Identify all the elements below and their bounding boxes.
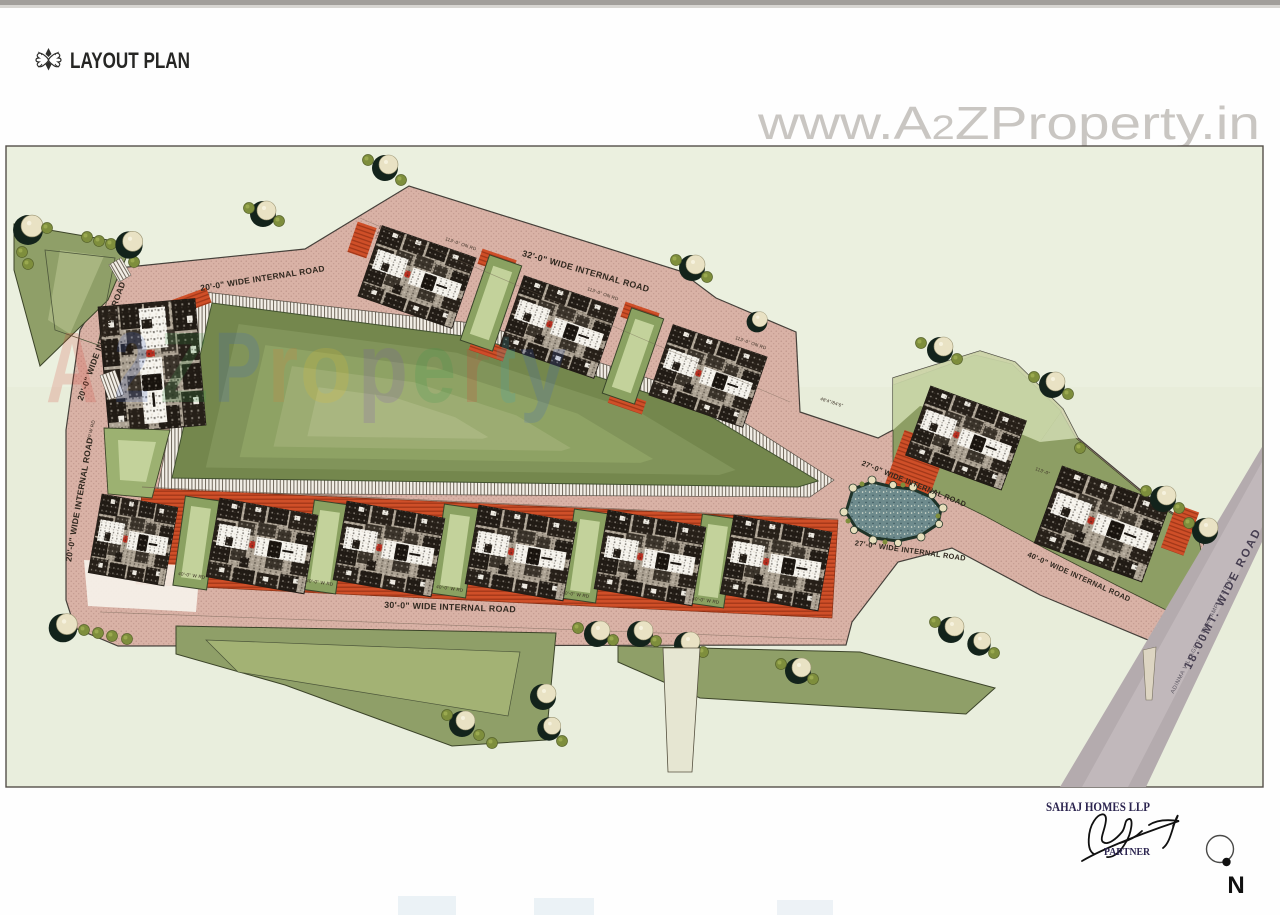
svg-text:o: o <box>300 312 352 424</box>
svg-text:y: y <box>520 312 566 424</box>
svg-text:N: N <box>1227 872 1244 899</box>
svg-text:Z: Z <box>160 312 208 424</box>
svg-text:PARTNER: PARTNER <box>1104 846 1151 858</box>
svg-text:www.A2ZProperty.in: www.A2ZProperty.in <box>757 97 1260 149</box>
svg-text:t: t <box>496 312 516 424</box>
svg-text:2: 2 <box>114 312 150 424</box>
svg-text:p: p <box>358 312 408 424</box>
svg-text:r: r <box>268 312 298 424</box>
svg-text:r: r <box>462 312 490 424</box>
svg-text:SAHAJ HOMES LLP: SAHAJ HOMES LLP <box>1046 800 1150 814</box>
svg-text:A: A <box>46 312 98 424</box>
svg-text:P: P <box>214 312 262 424</box>
svg-text:LAYOUT PLAN: LAYOUT PLAN <box>70 48 190 73</box>
svg-text:e: e <box>412 312 456 424</box>
